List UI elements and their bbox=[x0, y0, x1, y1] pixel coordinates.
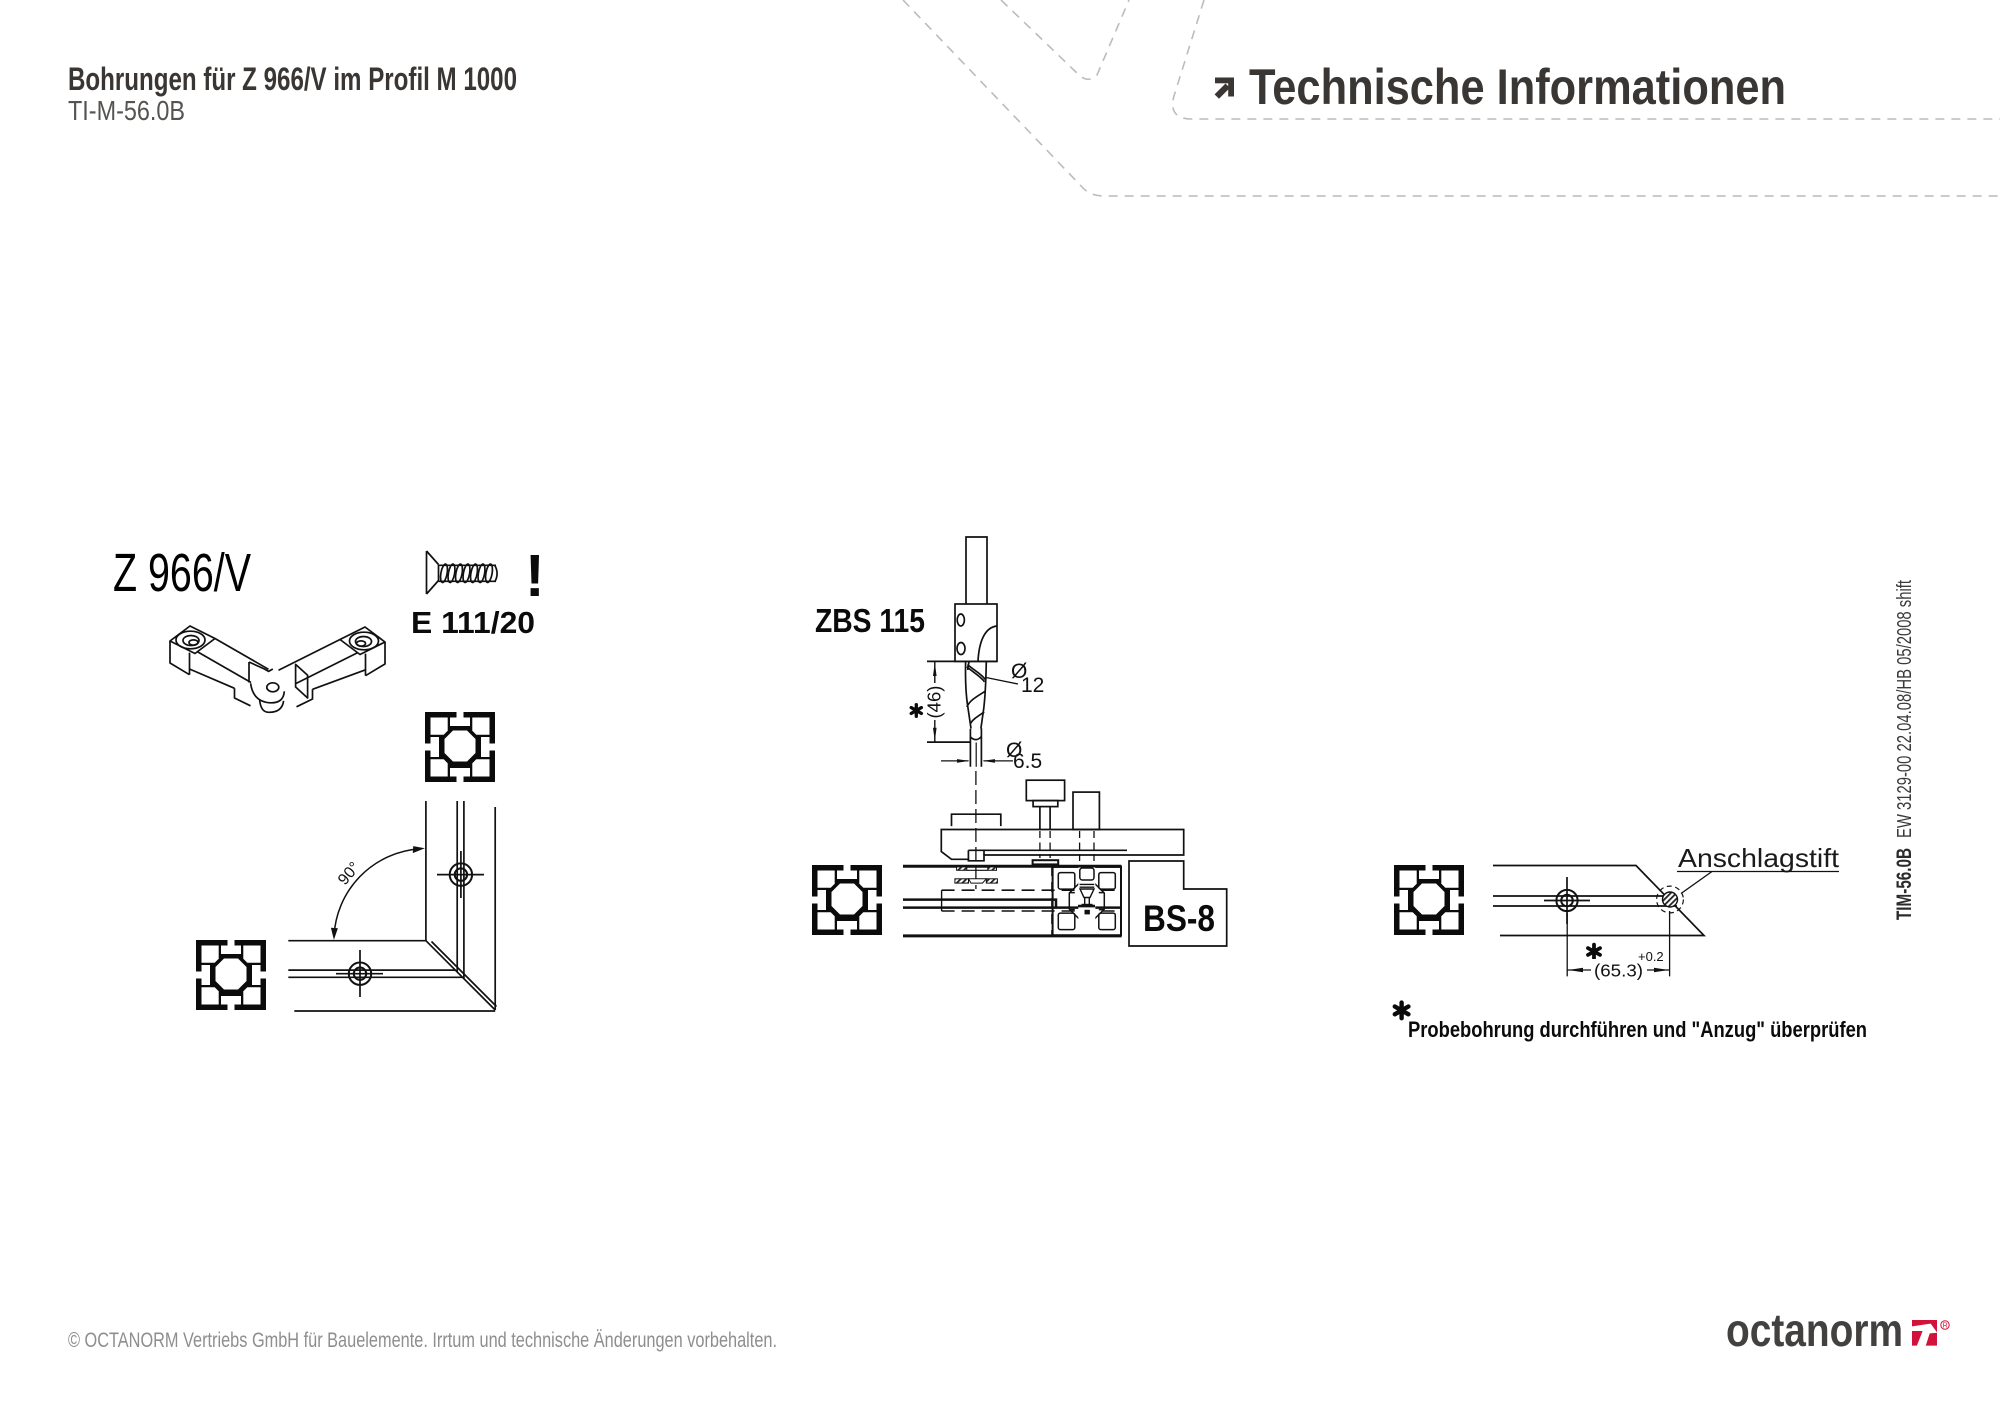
svg-text:TI-M-56.0B: TI-M-56.0B bbox=[68, 95, 185, 126]
svg-text:Z 966/V: Z 966/V bbox=[113, 543, 251, 603]
svg-text:EW 3129-00 22.04.08/HB 05/: EW 3129-00 22.04.08/HB 05/2008 shift bbox=[1894, 580, 1916, 838]
svg-text:(46): (46) bbox=[923, 686, 944, 719]
svg-text:E 111/20: E 111/20 bbox=[411, 605, 535, 640]
svg-text:octanorm: octanorm bbox=[1726, 1304, 1903, 1356]
svg-text:6.5: 6.5 bbox=[1013, 750, 1042, 773]
svg-text:12: 12 bbox=[1021, 674, 1044, 697]
svg-text:Probebohrung durchführen und ": Probebohrung durchführen und "Anzug" übe… bbox=[1408, 1017, 1867, 1042]
svg-text:!: ! bbox=[525, 543, 545, 609]
svg-text:Bohrungen für Z 966/V im Profi: Bohrungen für Z 966/V im Profil M 1000 bbox=[68, 61, 517, 97]
svg-text:R: R bbox=[1943, 1323, 1948, 1330]
svg-text:Anschlagstift: Anschlagstift bbox=[1678, 843, 1840, 873]
svg-text:TIM-56.0B: TIM-56.0B bbox=[1893, 848, 1916, 920]
svg-text:© OCTANORM Vertriebs GmbH für: © OCTANORM Vertriebs GmbH für Bauelement… bbox=[68, 1329, 777, 1352]
svg-text:Technische Informationen: Technische Informationen bbox=[1249, 59, 1786, 115]
svg-text:(65.3): (65.3) bbox=[1594, 961, 1643, 981]
svg-text:+0.2: +0.2 bbox=[1638, 949, 1664, 964]
svg-text:BS-8: BS-8 bbox=[1143, 898, 1215, 939]
svg-text:ZBS 115: ZBS 115 bbox=[815, 602, 925, 639]
